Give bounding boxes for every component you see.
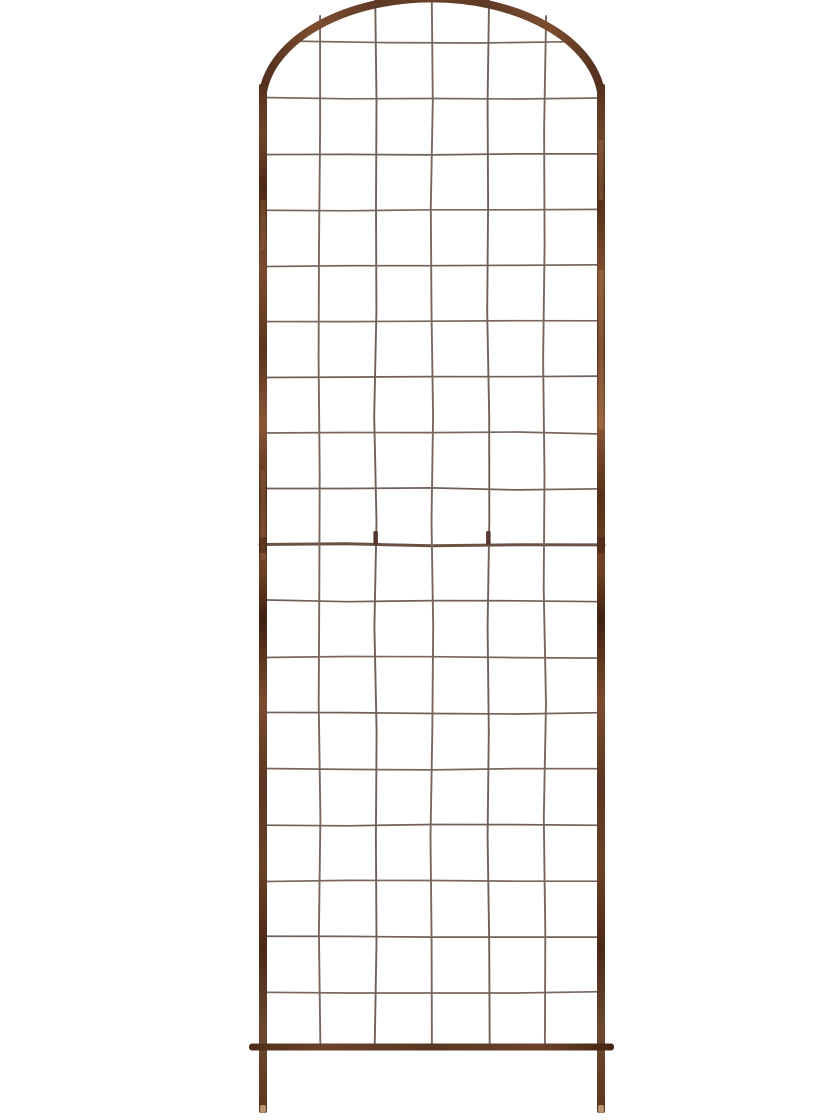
panel-connector-tab [373,531,378,545]
product-photo [0,0,840,1120]
rust-highlight-patch [599,140,604,200]
rail-seam-band [597,537,605,553]
panel-connector-tab [486,531,491,545]
trellis-illustration [0,0,840,1120]
right-leg-tip [598,1105,604,1113]
grid-wires [260,0,604,1047]
right-rail [597,84,605,1113]
rust-highlight-patch [261,200,266,250]
horizontal-wire [263,209,601,210]
vertical-wire [487,0,490,1047]
bottom-crossbar [249,1044,614,1051]
vertical-wire [374,0,376,1047]
rail-seam-band [259,537,267,553]
rust-highlight-patch [599,270,604,430]
vertical-wire [319,16,321,1047]
left-leg-tip [260,1105,266,1113]
vertical-wire [543,16,546,1047]
vertical-wire [431,0,434,1047]
horizontal-wire [263,880,601,881]
horizontal-wire [263,825,601,826]
